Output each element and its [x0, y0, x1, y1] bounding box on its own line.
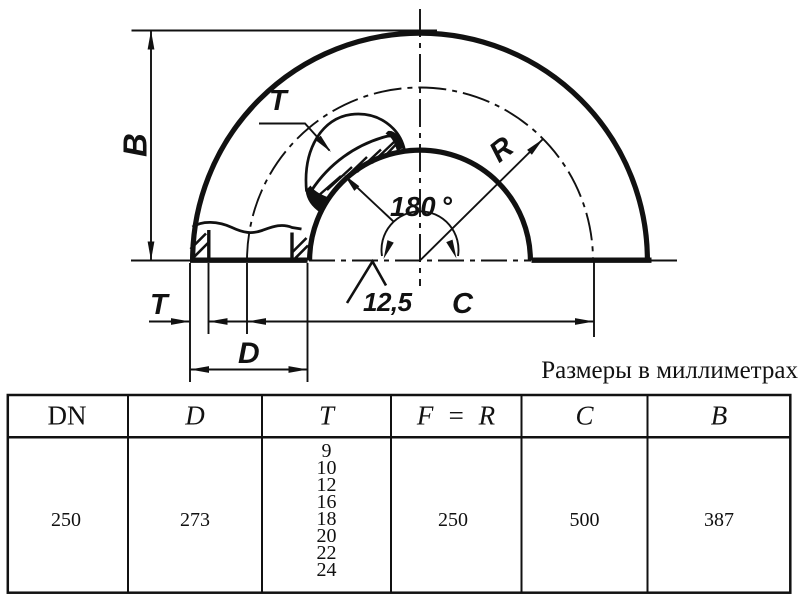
svg-text:B: B: [117, 133, 154, 157]
svg-text:C: C: [452, 288, 474, 320]
svg-text:T: T: [269, 85, 289, 117]
svg-text:250: 250: [438, 509, 468, 531]
svg-text:D: D: [184, 401, 205, 431]
svg-text:24: 24: [317, 559, 337, 581]
svg-text:C: C: [575, 401, 594, 431]
svg-text:T: T: [150, 289, 170, 321]
svg-text:F = R: F = R: [416, 401, 496, 431]
svg-text:Размеры в миллиметрах: Размеры в миллиметрах: [541, 357, 798, 384]
svg-text:250: 250: [51, 509, 81, 531]
svg-text:180 °: 180 °: [390, 191, 453, 222]
svg-text:DN: DN: [48, 401, 87, 431]
svg-text:12,5: 12,5: [363, 287, 413, 317]
svg-text:273: 273: [180, 509, 210, 531]
svg-text:387: 387: [704, 509, 734, 531]
svg-text:D: D: [238, 337, 260, 370]
svg-text:T: T: [319, 401, 336, 431]
svg-text:500: 500: [570, 509, 600, 531]
svg-text:B: B: [711, 401, 728, 431]
